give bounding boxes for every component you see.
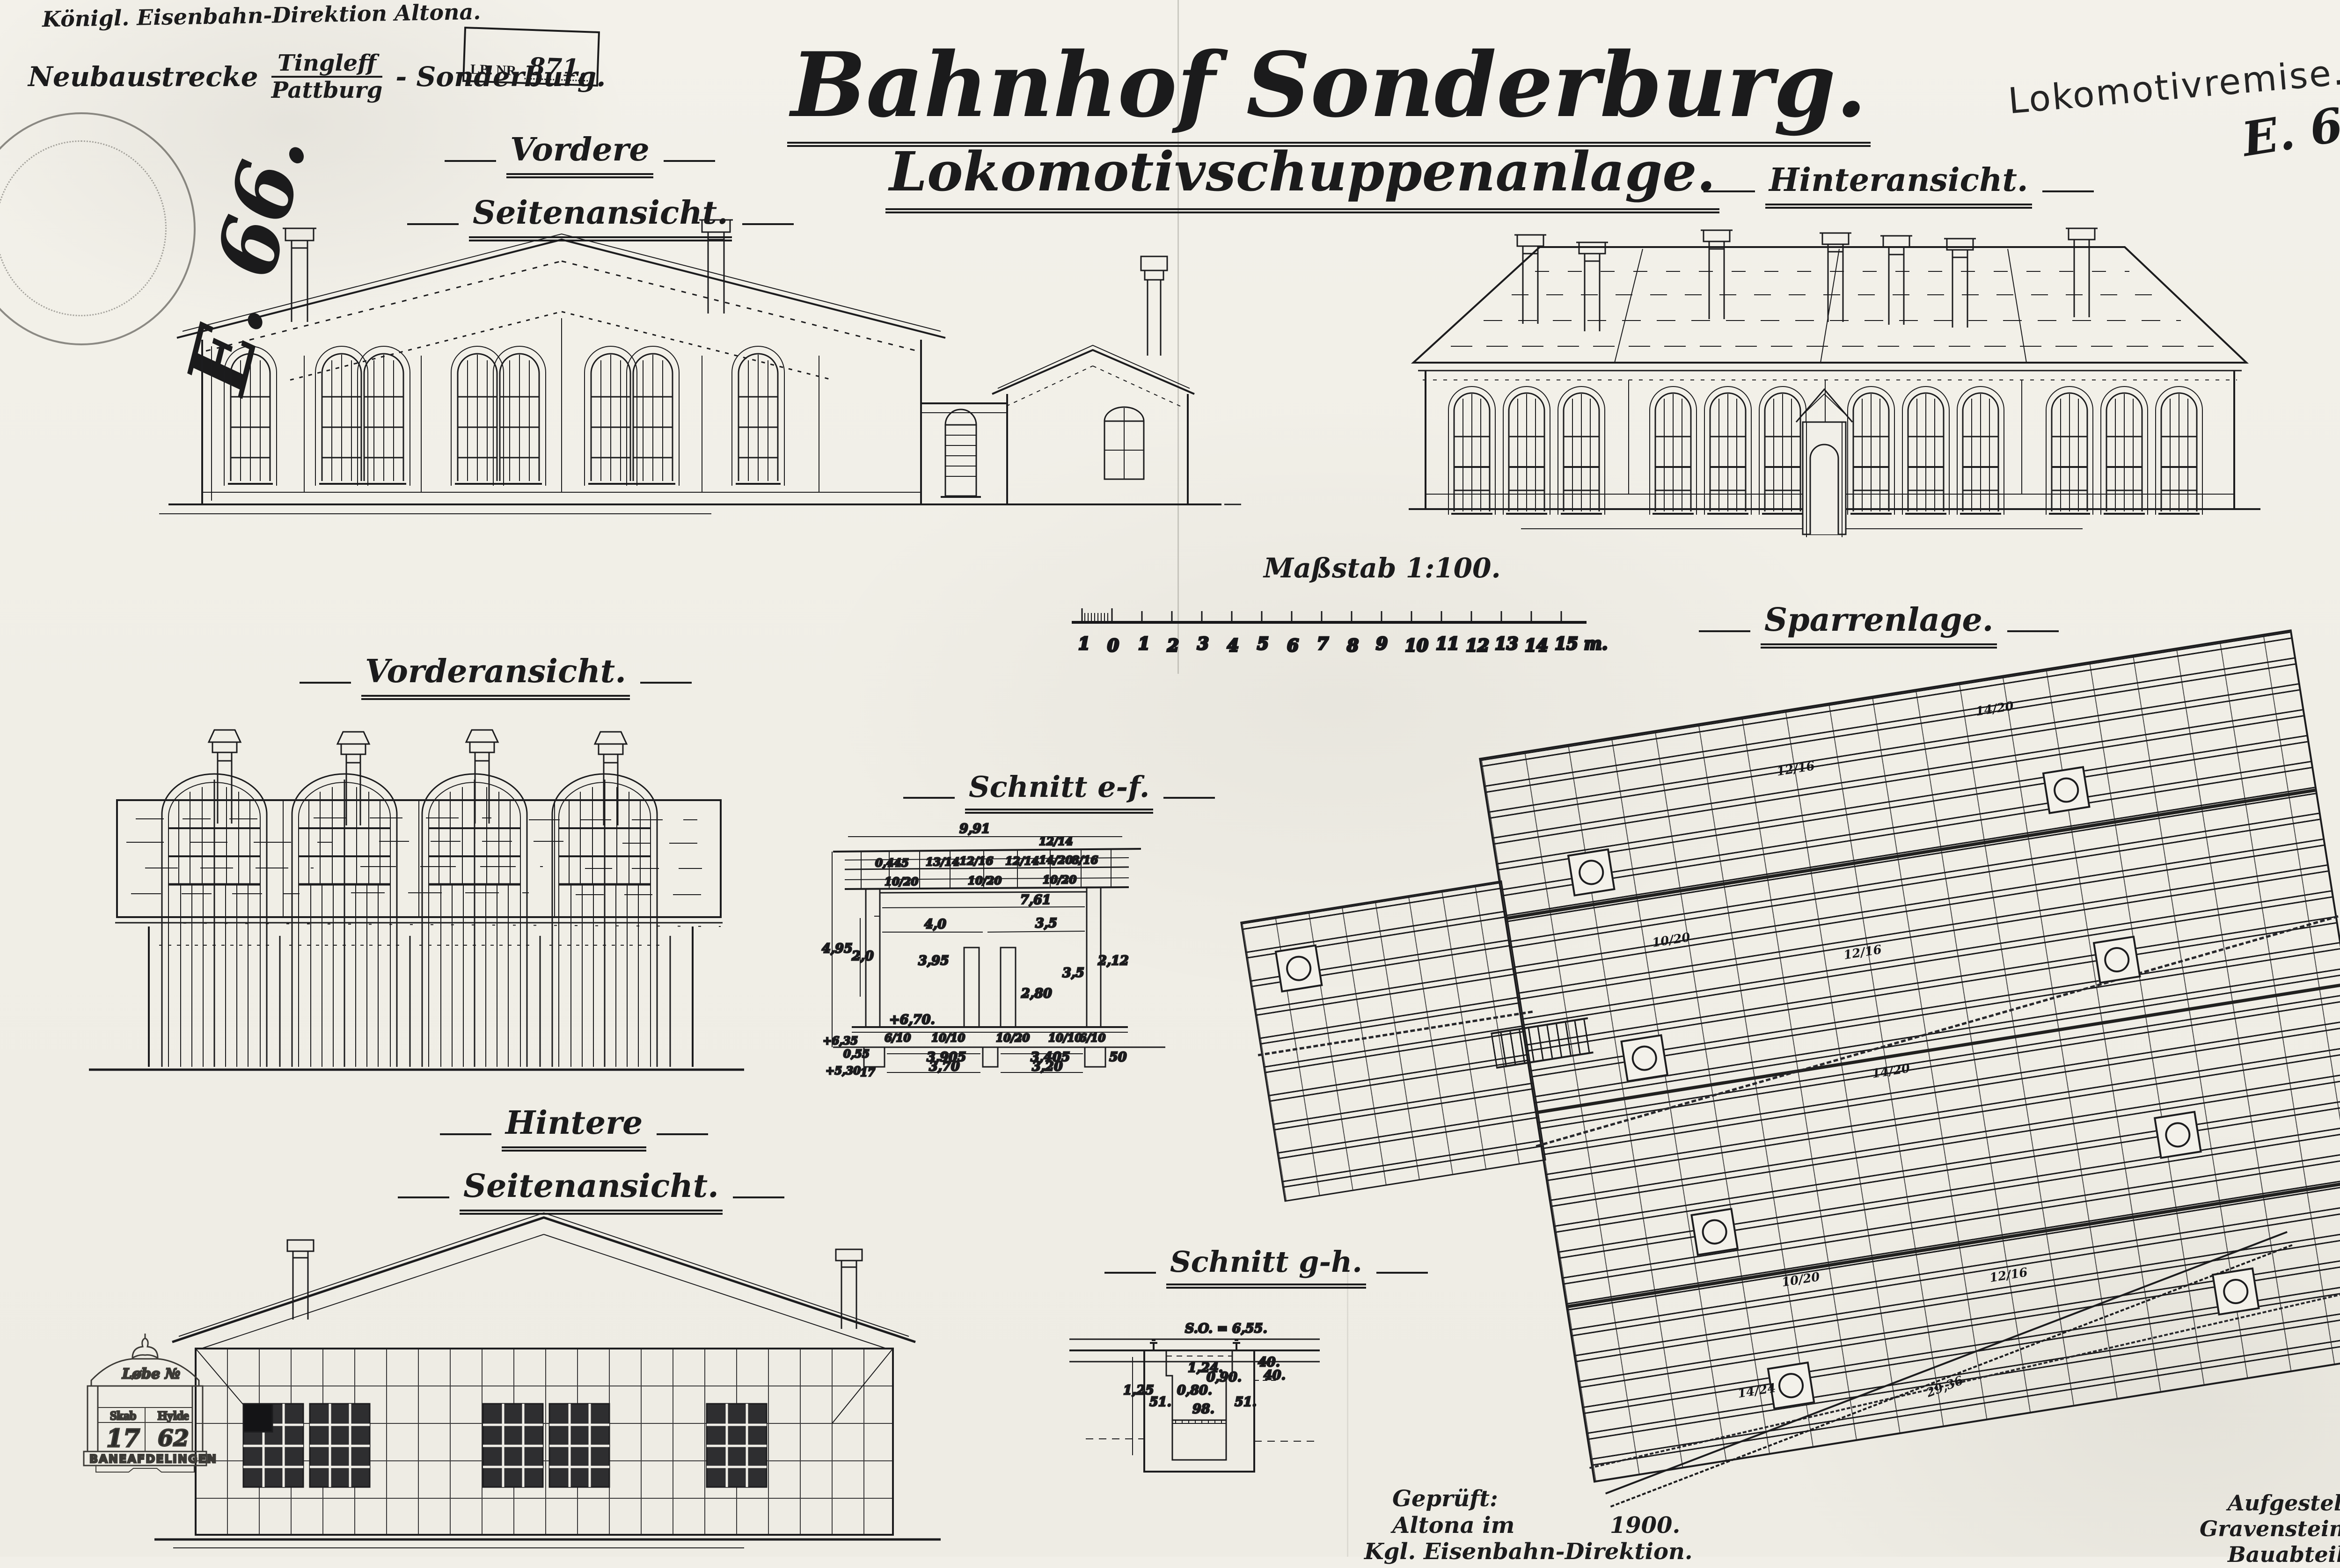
crown-icon bbox=[132, 1334, 158, 1358]
rear-gable-roof bbox=[172, 1213, 915, 1349]
label-dash bbox=[440, 1133, 491, 1135]
authority-text: Königl. Eisenbahn-Direktion Altona. bbox=[42, 0, 481, 32]
lb-number-box: LB. NR. 871. bbox=[462, 27, 600, 87]
svg-text:10/20: 10/20 bbox=[885, 875, 918, 888]
vorderansicht-drawing bbox=[70, 693, 749, 1086]
checked-line1: Geprüft: bbox=[1392, 1486, 1498, 1512]
label-dash bbox=[2042, 190, 2094, 192]
page-title: Bahnhof Sonderburg. bbox=[787, 33, 1871, 147]
svg-text:0,55: 0,55 bbox=[843, 1048, 870, 1060]
vordere-seitenansicht-drawing bbox=[150, 201, 1226, 538]
prepared-line1: Aufgestellt: bbox=[2228, 1490, 2340, 1516]
svg-text:10/10: 10/10 bbox=[1048, 1032, 1082, 1044]
label-dash bbox=[1163, 797, 1215, 799]
sparrenlage-plan: 12/16 14/20 10/20 12/16 14/20 10/20 12/1… bbox=[1217, 650, 2340, 1557]
svg-text:12/14: 12/14 bbox=[1005, 855, 1039, 868]
svg-text:2,12: 2,12 bbox=[1097, 954, 1129, 968]
label-sparrenlage: Sparrenlage. bbox=[1699, 601, 2059, 649]
svg-text:+6,35: +6,35 bbox=[823, 1035, 858, 1047]
svg-text:4,95: 4,95 bbox=[822, 941, 853, 956]
svg-text:3,5: 3,5 bbox=[1062, 966, 1084, 980]
svg-text:40.: 40. bbox=[1258, 1355, 1280, 1370]
label-dash bbox=[664, 160, 715, 162]
timber-note: 12/16 bbox=[1989, 1265, 2029, 1285]
label-sparrenlage-text: Sparrenlage. bbox=[1761, 601, 1997, 649]
arched-windows bbox=[224, 346, 784, 486]
round-stamp-inner bbox=[0, 140, 167, 316]
prepared-line3: Bauabteilung. bbox=[2228, 1542, 2340, 1567]
chimney-opening bbox=[2042, 766, 2091, 814]
svg-text:+6,70.: +6,70. bbox=[889, 1013, 935, 1027]
svg-text:8/16: 8/16 bbox=[1071, 854, 1098, 867]
stamp-footer-text: BANEAFDELINGEN bbox=[89, 1452, 217, 1466]
main-wall bbox=[202, 318, 921, 504]
checked-year: 1900. bbox=[1610, 1512, 1680, 1539]
label-dash bbox=[445, 160, 496, 162]
front-wall bbox=[89, 926, 744, 1070]
section-walls: 7,61 4,0 3,5 3,95 2,80 3,5 2,12 +6,70. 6… bbox=[852, 887, 1129, 1044]
svg-text:98.: 98. bbox=[1192, 1402, 1214, 1416]
svg-text:40.: 40. bbox=[1264, 1368, 1286, 1383]
svg-text:10/20: 10/20 bbox=[996, 1032, 1030, 1044]
svg-text:12/14: 12/14 bbox=[1039, 835, 1073, 848]
label-dash bbox=[1699, 630, 1750, 632]
svg-text:S.O. = 6,55.: S.O. = 6,55. bbox=[1185, 1321, 1267, 1336]
svg-text:7,61: 7,61 bbox=[1020, 893, 1051, 907]
hinteransicht-drawing bbox=[1381, 206, 2279, 543]
purlin-beam bbox=[1506, 788, 2316, 920]
svg-text:3,95: 3,95 bbox=[918, 954, 949, 968]
rail-level-lines bbox=[1069, 1339, 1320, 1362]
prepared-line2: Gravenstein, im Febr. 1900. bbox=[2200, 1516, 2340, 1541]
svg-text:1: 1 bbox=[1078, 634, 1090, 654]
signoff-checked: Geprüft: Altona im 1900. Kgl. Eisenbahn-… bbox=[1392, 1486, 1693, 1565]
chimney-opening bbox=[1690, 1208, 1739, 1256]
svg-text:50: 50 bbox=[1109, 1050, 1127, 1065]
label-dash bbox=[657, 1133, 708, 1135]
svg-text:6/10: 6/10 bbox=[885, 1032, 911, 1044]
svg-text:10/20: 10/20 bbox=[1043, 874, 1076, 886]
schnitt-ef-drawing: 9,91 0,445 13/14 12/16 12/14 14/20 8/16 … bbox=[819, 814, 1189, 1081]
stamp-hylde-value: 62 bbox=[158, 1425, 189, 1451]
svg-text:6/10: 6/10 bbox=[1079, 1032, 1105, 1044]
label-schnitt-ef: Schnitt e-f. bbox=[903, 770, 1215, 814]
svg-text:2: 2 bbox=[1167, 636, 1179, 656]
stamp-skab-value: 17 bbox=[106, 1424, 140, 1453]
annex-building bbox=[921, 256, 1241, 504]
checked-line2a: Altona im bbox=[1392, 1512, 1514, 1539]
label-schnitt-ef-text: Schnitt e-f. bbox=[965, 770, 1153, 814]
svg-text:0,80.: 0,80. bbox=[1177, 1383, 1212, 1398]
timber-note: 10/20 bbox=[1651, 930, 1691, 950]
svg-text:4,0: 4,0 bbox=[924, 917, 946, 932]
svg-text:10/10: 10/10 bbox=[931, 1032, 965, 1044]
svg-text:17: 17 bbox=[860, 1066, 875, 1079]
pit-dimensions: 1,24. 0,90. 0,80. 1,25 51. 51. 98. 40. 4… bbox=[1123, 1355, 1286, 1455]
svg-text:0,445: 0,445 bbox=[875, 857, 909, 869]
svg-text:12/16: 12/16 bbox=[959, 855, 993, 868]
signoff-prepared: Aufgestellt: Gravenstein, im Febr. 1900.… bbox=[2200, 1490, 2340, 1568]
label-dash bbox=[300, 682, 351, 684]
svg-text:51.: 51. bbox=[1149, 1395, 1171, 1409]
label-dash bbox=[640, 682, 692, 684]
route-prefix: Neubaustrecke bbox=[28, 61, 258, 93]
scalebar-label: Maßstab 1:100. bbox=[1264, 552, 1501, 584]
hintere-seitenansicht-drawing bbox=[136, 1184, 959, 1558]
route-top: Tingleff bbox=[271, 51, 383, 78]
svg-text:2,0: 2,0 bbox=[851, 949, 874, 963]
svg-text:51.: 51. bbox=[1235, 1395, 1257, 1409]
svg-text:0,90.: 0,90. bbox=[1207, 1370, 1242, 1385]
svg-text:14/20: 14/20 bbox=[1039, 854, 1073, 867]
stamp-top-text: Løbe № bbox=[122, 1366, 180, 1382]
svg-text:1: 1 bbox=[1138, 634, 1150, 654]
timber-note: 12/16 bbox=[1843, 943, 1883, 963]
route-bottom: Pattburg bbox=[271, 78, 383, 102]
lb-number: 871. bbox=[524, 56, 592, 82]
svg-text:13/14: 13/14 bbox=[926, 856, 959, 868]
lb-label: LB. NR. bbox=[470, 61, 520, 79]
chimney-opening bbox=[2212, 1268, 2260, 1316]
label-hinteransicht: Hinteransicht. bbox=[1704, 161, 2094, 209]
svg-text:3: 3 bbox=[1197, 634, 1209, 654]
annex-chimney-opening bbox=[1275, 944, 1323, 992]
authority-line: Königl. Eisenbahn-Direktion Altona. bbox=[42, 0, 481, 32]
svg-text:2,80: 2,80 bbox=[1021, 986, 1052, 1001]
svg-text:9,91: 9,91 bbox=[959, 822, 990, 836]
label-dash bbox=[1104, 1272, 1156, 1274]
timber-note: 14/24 bbox=[1737, 1381, 1777, 1401]
rear-side-windows bbox=[243, 1404, 767, 1487]
chimney-opening bbox=[1567, 848, 1616, 897]
svg-text:3,5: 3,5 bbox=[1035, 916, 1057, 931]
chimney-opening bbox=[1620, 1034, 1668, 1082]
label-dash bbox=[1704, 190, 1755, 192]
svg-text:+5,30: +5,30 bbox=[826, 1065, 861, 1077]
label-hinteransicht-text: Hinteransicht. bbox=[1765, 161, 2032, 209]
svg-text:0: 0 bbox=[1107, 636, 1119, 656]
timber-note: 14/20 bbox=[1871, 1061, 1911, 1081]
svg-text:10/20: 10/20 bbox=[968, 875, 1002, 887]
schnitt-gh-drawing: S.O. = 6,55. 1,24. 0,90. 0,80. 1,25 5 bbox=[1058, 1305, 1385, 1511]
timber-note: 14/20 bbox=[1974, 699, 2015, 719]
label-dash bbox=[2007, 630, 2059, 632]
chimney-opening bbox=[2093, 936, 2141, 984]
svg-text:3,20: 3,20 bbox=[1032, 1059, 1063, 1074]
stamp-skab-label: Skab bbox=[110, 1409, 136, 1422]
stamp-hylde-label: Hylde bbox=[158, 1409, 189, 1422]
roof-truss: 0,445 13/14 12/16 12/14 14/20 8/16 12/14… bbox=[833, 835, 1141, 889]
scalebar-label-text: Maßstab 1:100. bbox=[1264, 552, 1501, 584]
checked-line3: Kgl. Eisenbahn-Direktion. bbox=[1364, 1539, 1693, 1565]
entrance-porch bbox=[1796, 389, 1852, 537]
route-fraction: Tingleff Pattburg bbox=[271, 51, 383, 102]
sheet-title: Bahnhof Sonderburg. bbox=[777, 33, 1666, 147]
archive-stamp: Løbe № Skab Hylde 17 62 BANEAFDELINGEN bbox=[77, 1334, 213, 1474]
front-roof bbox=[115, 800, 723, 926]
label-dash bbox=[903, 797, 955, 799]
chimney-opening bbox=[2154, 1111, 2202, 1159]
label-hintere-line1: Hintere bbox=[502, 1104, 646, 1152]
label-vordere-line1: Vordere bbox=[506, 131, 653, 178]
drawing-sheet: Königl. Eisenbahn-Direktion Altona. Neub… bbox=[0, 0, 2340, 1557]
main-rafter-grid: 12/16 14/20 10/20 12/16 14/20 10/20 12/1… bbox=[1479, 629, 2340, 1483]
svg-text:3,70: 3,70 bbox=[929, 1059, 960, 1074]
file-code-right-text: E. 66. bbox=[2238, 89, 2340, 168]
timber-note: 12/16 bbox=[1776, 759, 1816, 779]
file-code-right: E. 66. bbox=[2238, 89, 2340, 168]
foundations: 3,905 3,405 50 3,70 3,20 0,55 17 +5,30 bbox=[826, 1047, 1165, 1079]
